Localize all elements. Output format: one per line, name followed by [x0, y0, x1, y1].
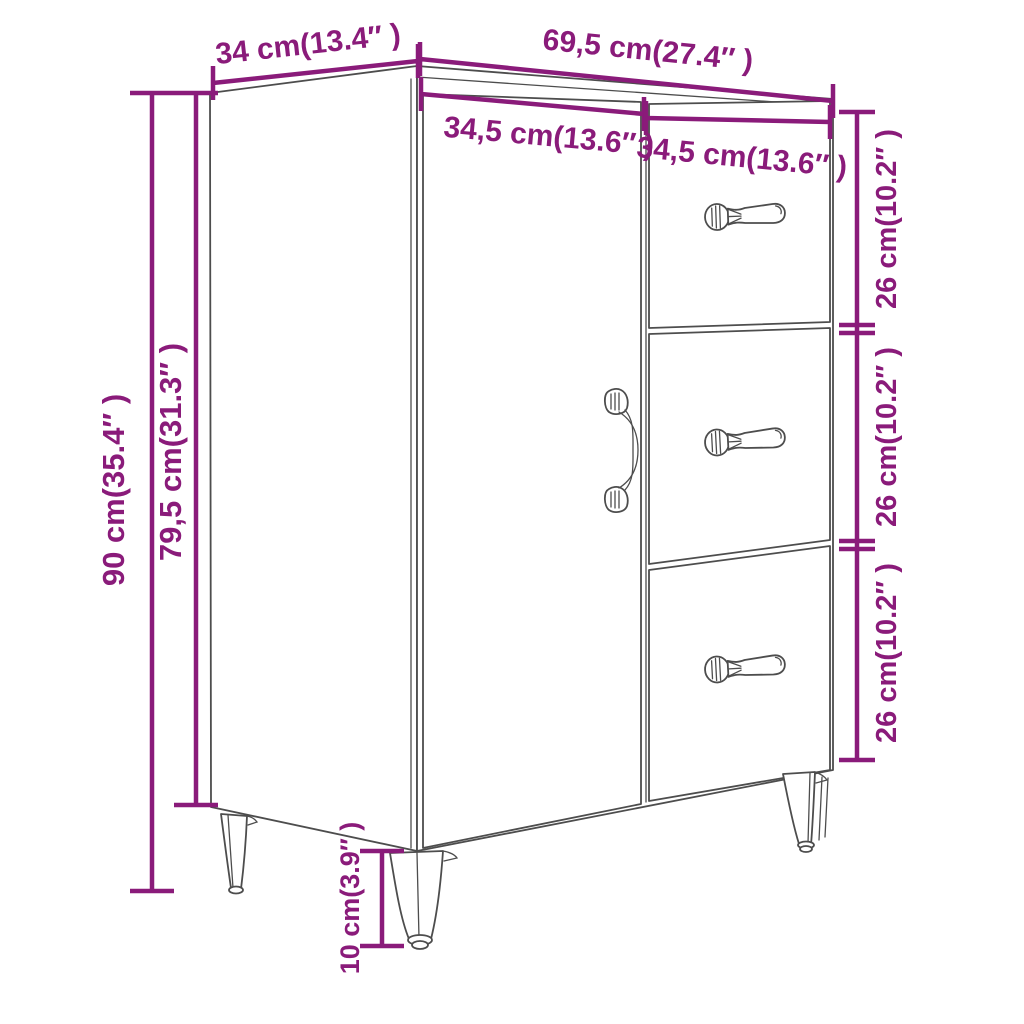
dim-label-top-depth: 34 cm(13.4″ ) — [214, 18, 403, 71]
cabinet-side-panel — [210, 66, 417, 851]
dim-label-body-height: 79,5 cm(31.3″ ) — [153, 343, 188, 561]
leg-front-left — [390, 851, 457, 949]
leg-front-right — [783, 772, 828, 852]
dimension-diagram-page: 34 cm(13.4″ ) 69,5 cm(27.4″ ) 34,5 cm(13… — [0, 0, 1024, 1024]
dim-label-drawer3-height: 26 cm(10.2″ ) — [871, 563, 903, 743]
dim-label-drawer2-height: 26 cm(10.2″ ) — [871, 347, 903, 527]
dim-line-drawer-heights — [839, 112, 875, 760]
dim-label-drawer1-height: 26 cm(10.2″ ) — [871, 129, 903, 309]
cabinet-door — [423, 94, 641, 848]
leg-rear-left — [221, 814, 257, 894]
dim-label-leg-height: 10 cm(3.9″ ) — [335, 822, 365, 975]
cabinet — [210, 66, 833, 949]
dim-label-top-width: 69,5 cm(27.4″ ) — [541, 23, 754, 77]
sideboard-dimension-diagram: 34 cm(13.4″ ) 69,5 cm(27.4″ ) 34,5 cm(13… — [0, 0, 1024, 1024]
dim-label-total-height: 90 cm(35.4″ ) — [96, 394, 131, 586]
